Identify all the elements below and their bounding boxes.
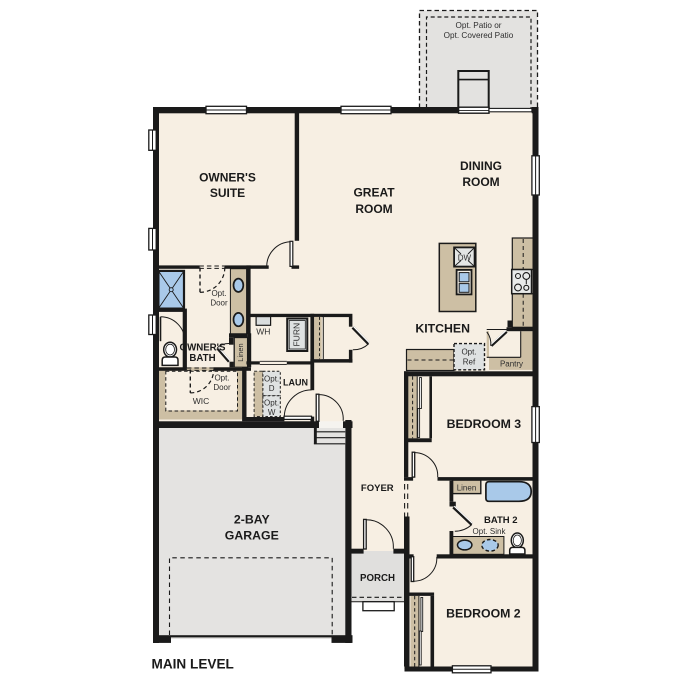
svg-text:GREAT: GREAT xyxy=(353,186,395,200)
svg-text:WH: WH xyxy=(256,327,270,337)
svg-text:Opt.: Opt. xyxy=(214,374,229,383)
svg-text:W: W xyxy=(268,408,276,417)
svg-text:Door: Door xyxy=(210,299,228,308)
svg-text:OWNER'S: OWNER'S xyxy=(199,171,256,185)
svg-text:BEDROOM 3: BEDROOM 3 xyxy=(447,417,522,431)
svg-text:FOYER: FOYER xyxy=(361,483,394,494)
svg-text:Linen: Linen xyxy=(457,484,477,493)
svg-text:Opt.: Opt. xyxy=(264,375,279,384)
svg-text:LAUN: LAUN xyxy=(283,378,308,388)
svg-text:Linen: Linen xyxy=(236,343,245,361)
svg-text:DINING: DINING xyxy=(460,159,502,173)
svg-text:WIC: WIC xyxy=(193,396,210,406)
svg-text:Opt.: Opt. xyxy=(211,289,226,298)
svg-text:D: D xyxy=(269,384,275,393)
svg-text:Opt. Sink: Opt. Sink xyxy=(473,527,507,536)
svg-text:DW: DW xyxy=(458,253,472,262)
svg-text:Opt.: Opt. xyxy=(264,399,279,408)
svg-text:BATH 2: BATH 2 xyxy=(484,515,518,526)
svg-text:ROOM: ROOM xyxy=(355,202,392,216)
svg-text:Opt. Covered Patio: Opt. Covered Patio xyxy=(444,31,514,40)
svg-text:FURN: FURN xyxy=(291,323,301,347)
svg-text:KITCHEN: KITCHEN xyxy=(415,322,470,336)
svg-text:GARAGE: GARAGE xyxy=(225,529,279,543)
svg-text:2-BAY: 2-BAY xyxy=(234,513,270,527)
svg-text:BEDROOM 2: BEDROOM 2 xyxy=(446,607,521,621)
svg-text:Door: Door xyxy=(213,383,231,392)
svg-text:Opt.: Opt. xyxy=(461,348,476,357)
svg-text:MAIN LEVEL: MAIN LEVEL xyxy=(152,656,234,671)
svg-text:PORCH: PORCH xyxy=(360,573,395,584)
svg-text:Pantry: Pantry xyxy=(500,360,523,369)
svg-text:OWNER'S: OWNER'S xyxy=(180,342,226,353)
svg-text:Opt. Patio or: Opt. Patio or xyxy=(456,21,502,30)
svg-text:BATH: BATH xyxy=(189,353,215,364)
svg-text:ROOM: ROOM xyxy=(462,175,499,189)
svg-text:Ref: Ref xyxy=(463,358,476,367)
svg-text:SUITE: SUITE xyxy=(210,186,245,200)
